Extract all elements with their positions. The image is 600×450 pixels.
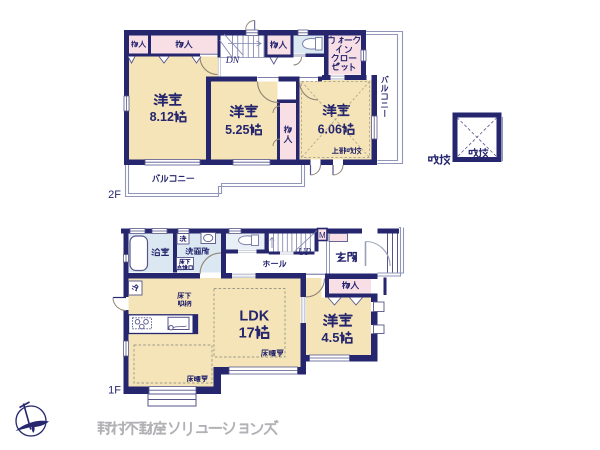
svg-text:1F: 1F: [108, 385, 121, 397]
svg-text:LDK: LDK: [239, 308, 269, 324]
svg-text:5.25: 5.25: [225, 123, 249, 137]
svg-text:DN: DN: [225, 55, 240, 66]
svg-text:6.06: 6.06: [318, 122, 342, 136]
svg-text:2F: 2F: [108, 189, 121, 201]
svg-text:4.5: 4.5: [321, 330, 339, 345]
svg-text:8.12: 8.12: [150, 110, 174, 124]
svg-text:M: M: [319, 231, 326, 240]
svg-text:17: 17: [239, 325, 255, 341]
svg-text:UP: UP: [298, 247, 311, 258]
